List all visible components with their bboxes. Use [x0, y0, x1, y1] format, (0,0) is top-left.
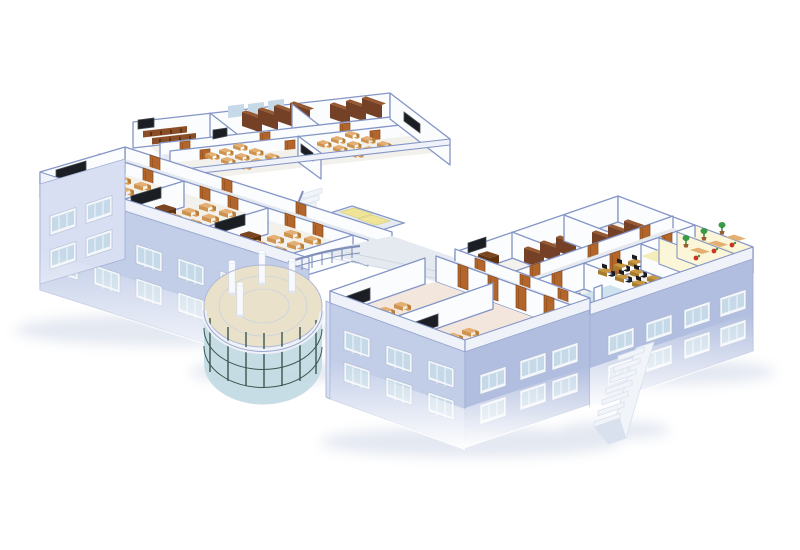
column [229, 261, 235, 296]
column [237, 283, 243, 318]
projection-screen [138, 118, 154, 129]
plant [719, 222, 726, 235]
door [458, 264, 468, 290]
column [289, 259, 295, 294]
south-gable-edge [326, 301, 330, 399]
door [516, 285, 526, 311]
column [259, 251, 265, 286]
isometric-building-svg [0, 0, 800, 550]
building-cutaway-render [0, 0, 800, 550]
clerestory-window [228, 104, 244, 118]
